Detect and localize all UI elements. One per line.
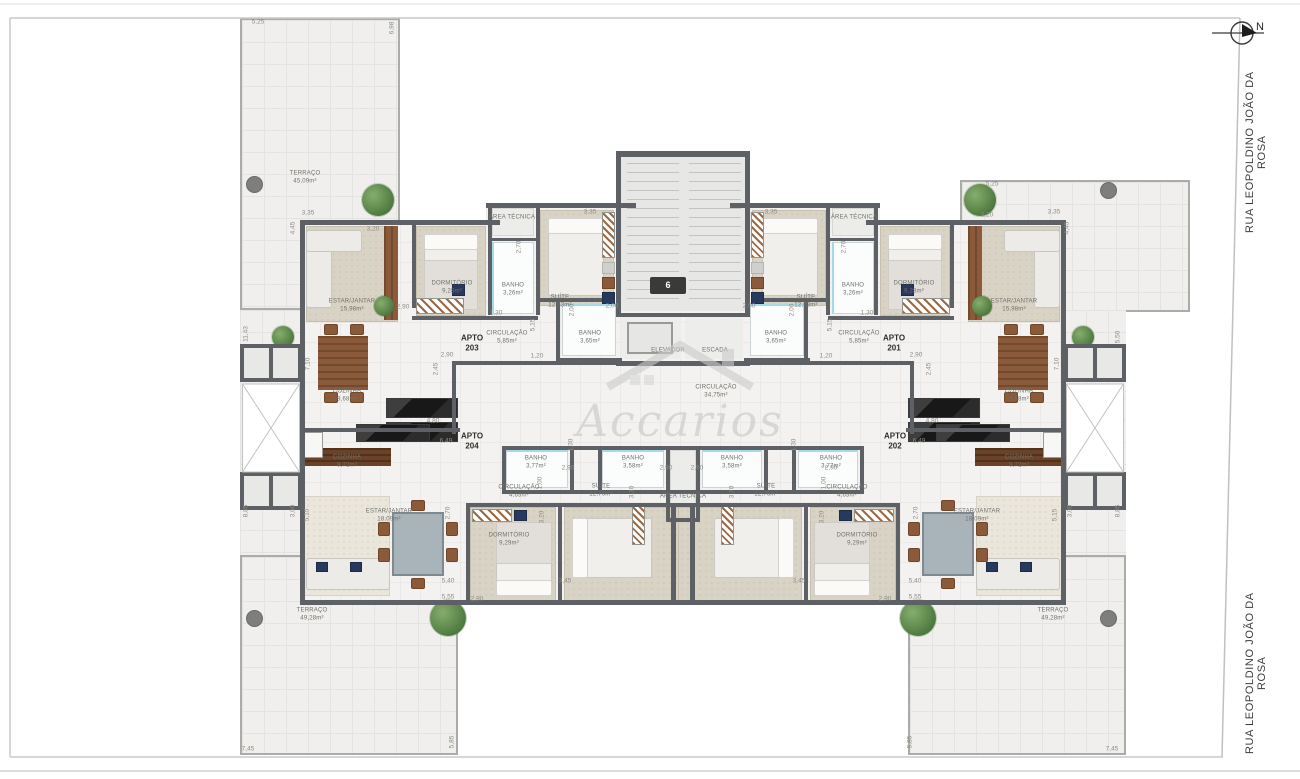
pillar-box: [240, 344, 302, 382]
chair: [324, 324, 338, 335]
chair: [378, 548, 390, 562]
dresser: [901, 284, 914, 296]
column: [1100, 610, 1117, 627]
chair: [908, 548, 920, 562]
wall: [570, 446, 574, 494]
cabinet: [751, 262, 764, 274]
chair: [350, 392, 364, 403]
sofa-pillow: [986, 562, 998, 572]
bed-pillows: [888, 234, 942, 250]
chair: [908, 522, 920, 536]
fridge: [303, 432, 323, 458]
elevator-car: [627, 322, 673, 354]
wall: [556, 300, 560, 362]
bathroom-floor: [492, 242, 534, 314]
wall: [910, 361, 914, 434]
wall: [950, 220, 954, 308]
sofa: [1004, 230, 1060, 252]
plant: [964, 184, 996, 216]
pillar-box: [1064, 344, 1126, 382]
plant: [430, 600, 466, 636]
street-name-bottom: RUA LEOPOLDINO JOÃO DA ROSA: [1244, 578, 1268, 768]
chair: [411, 500, 425, 511]
dresser: [452, 284, 465, 296]
kitchen-counter: [386, 398, 458, 418]
cabinet: [602, 292, 615, 304]
pillar-box: [240, 472, 302, 510]
pillar-box: [1064, 472, 1126, 510]
chair: [976, 522, 988, 536]
wall: [412, 220, 416, 308]
column: [246, 610, 263, 627]
wall: [300, 600, 1066, 605]
bed-blanket: [814, 522, 870, 564]
wall: [616, 151, 750, 157]
suite-closet: [751, 212, 764, 258]
suite-closet: [721, 505, 734, 545]
bed-pillows: [496, 580, 552, 596]
wall: [502, 446, 506, 494]
wall: [690, 503, 695, 605]
chair: [941, 500, 955, 511]
wall: [452, 361, 456, 434]
bed-blanket: [496, 522, 552, 564]
kitchen-counter: [936, 424, 1010, 442]
dresser: [839, 510, 852, 521]
wall: [826, 203, 830, 315]
wall: [826, 238, 878, 241]
closet: [902, 298, 950, 314]
wall: [616, 361, 750, 366]
cabinet: [602, 277, 615, 289]
cabinet: [751, 292, 764, 304]
suite-closet: [602, 212, 615, 258]
suite-bed-pillows: [548, 218, 604, 234]
closet: [416, 298, 464, 314]
chair: [1004, 392, 1018, 403]
suite-bathroom-floor: [562, 304, 616, 356]
suite-bed-pillows: [778, 518, 794, 578]
plant: [374, 296, 394, 316]
wall: [730, 203, 880, 208]
wall: [488, 238, 540, 241]
wall: [466, 503, 696, 507]
suite-bed-pillows: [572, 518, 588, 578]
chair: [1004, 324, 1018, 335]
bathroom-floor: [702, 450, 762, 488]
wall: [486, 203, 636, 208]
chair: [411, 578, 425, 589]
plant: [900, 600, 936, 636]
wall: [745, 151, 750, 315]
floor-plan-canvas: 6: [0, 0, 1300, 779]
wall: [616, 313, 750, 317]
dining-table: [392, 512, 444, 576]
column: [246, 176, 263, 193]
bathroom-floor: [798, 450, 858, 488]
wall: [744, 358, 810, 362]
wall: [804, 503, 808, 605]
closet: [854, 509, 894, 522]
floor-number-sign: 6: [650, 277, 686, 294]
wall: [1061, 220, 1066, 605]
street-name-top: RUA LEOPOLDINO JOÃO DA ROSA: [1244, 55, 1268, 250]
dining-table: [318, 336, 368, 390]
stair-landing-floor: [685, 317, 743, 359]
wall: [502, 490, 864, 494]
plant: [972, 296, 992, 316]
wall: [300, 428, 460, 432]
wall: [666, 446, 670, 522]
bed-pillows: [814, 580, 870, 596]
wall: [412, 316, 538, 320]
sofa-pillow: [316, 562, 328, 572]
suite-bed-pillows: [762, 218, 818, 234]
chair: [446, 548, 458, 562]
cabinet: [602, 262, 615, 274]
sofa: [306, 230, 362, 252]
sofa-pillow: [350, 562, 362, 572]
wall: [860, 446, 864, 494]
stair-flight-right: [689, 163, 741, 305]
wall: [764, 446, 768, 494]
wall: [804, 300, 808, 362]
wall: [696, 446, 700, 522]
wall: [792, 446, 796, 494]
wall: [502, 446, 864, 450]
fridge: [1043, 432, 1063, 458]
wall: [558, 503, 562, 605]
wall: [300, 220, 305, 605]
wall: [598, 446, 602, 494]
wall: [670, 503, 900, 507]
wall: [300, 220, 500, 225]
bathroom-floor: [602, 450, 664, 488]
wall: [866, 220, 1066, 225]
kitchen-counter: [356, 424, 430, 442]
chair: [1030, 324, 1044, 335]
wall: [452, 361, 620, 365]
compass-north-label: N: [1256, 21, 1264, 33]
chair: [446, 522, 458, 536]
chair: [1030, 392, 1044, 403]
bathroom-floor: [506, 450, 568, 488]
bed-pillows: [424, 234, 478, 250]
chair: [378, 522, 390, 536]
wall: [828, 316, 954, 320]
closet: [472, 509, 512, 522]
suite-bathroom-floor: [750, 304, 804, 356]
bathroom-floor: [832, 242, 874, 314]
wall: [466, 503, 470, 605]
sofa-pillow: [1020, 562, 1032, 572]
kitchen-counter: [908, 398, 980, 418]
suite-closet: [632, 505, 645, 545]
wall: [874, 203, 878, 315]
chair: [350, 324, 364, 335]
chair: [324, 392, 338, 403]
plant: [362, 184, 394, 216]
wall: [488, 203, 492, 315]
cabinet: [751, 277, 764, 289]
wall: [906, 428, 1066, 432]
chair: [976, 548, 988, 562]
wall: [896, 503, 900, 605]
wall: [764, 298, 826, 302]
wall: [616, 151, 621, 315]
column: [1100, 182, 1117, 199]
dining-table: [922, 512, 974, 576]
wall: [540, 298, 602, 302]
wall: [671, 503, 676, 605]
dresser: [514, 510, 527, 521]
chair: [941, 578, 955, 589]
dining-table: [998, 336, 1048, 390]
